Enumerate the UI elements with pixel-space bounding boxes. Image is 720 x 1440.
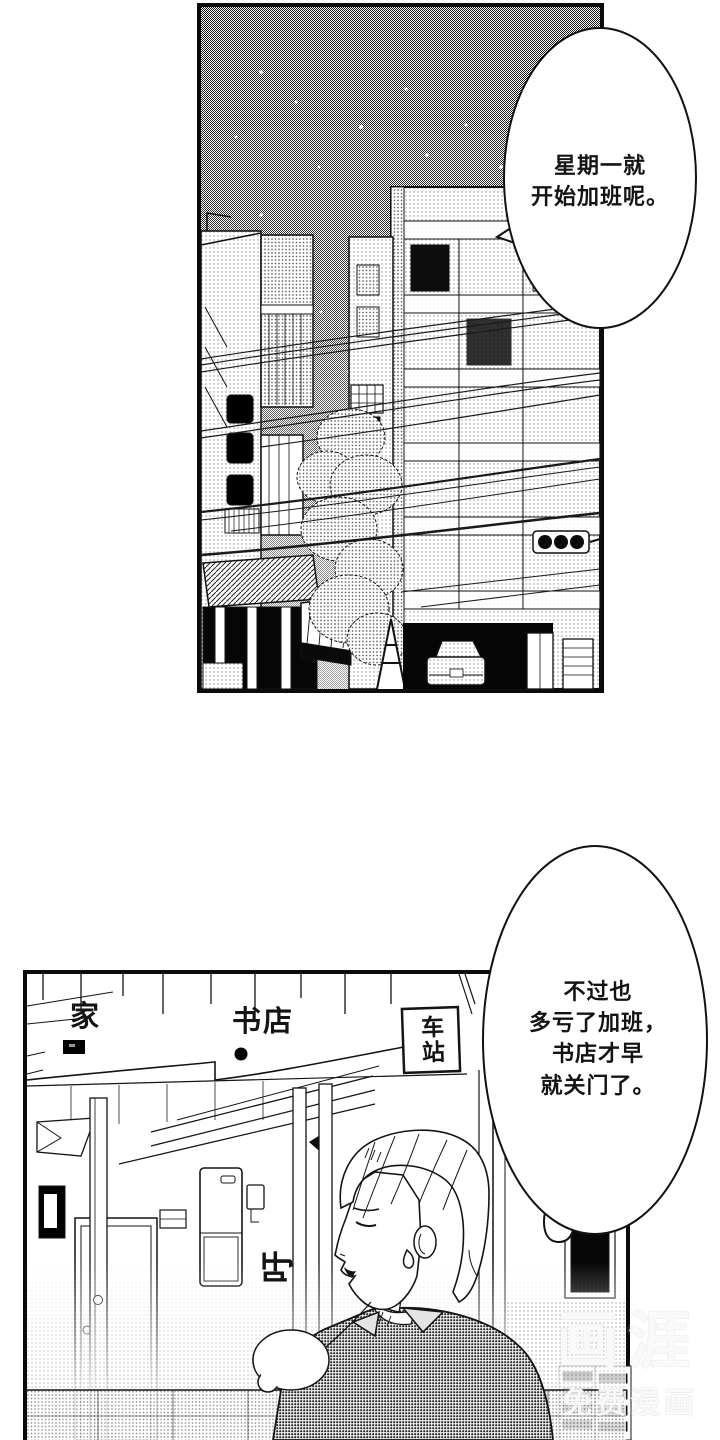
- bubble2-line: 多亏了加班，: [498, 1007, 698, 1038]
- sigh-sfx-text: 吁: [252, 1244, 298, 1290]
- panel-night-street: [197, 3, 604, 693]
- bubble2-line: 书店才早: [498, 1038, 698, 1069]
- watermark-brand: 画涯: [556, 1308, 700, 1376]
- night-street-illustration: [201, 7, 600, 689]
- map-label-home: 家: [70, 993, 101, 1035]
- map-bookstore-marker: [235, 1048, 248, 1061]
- speech-bubble-2-text: 不过也 多亏了加班， 书店才早 就关门了。: [498, 976, 698, 1101]
- bubble1-line: 星期一就: [505, 150, 695, 181]
- bubble2-line: 就关门了。: [498, 1070, 698, 1101]
- bubble1-line: 开始加班呢。: [505, 181, 695, 212]
- awning: [203, 555, 319, 607]
- map-label-bookstore: 书店: [232, 998, 294, 1040]
- station-canopy: [119, 1066, 379, 1164]
- watermark-tagline: 免费漫画: [556, 1378, 700, 1422]
- manga-page: 星期一就 开始加班呢。 不过也 多亏了加班， 书店才早 就关门了。 家 书店 车…: [0, 0, 720, 1440]
- ear: [414, 1226, 436, 1258]
- site-watermark: 画涯 免费漫画: [556, 1308, 700, 1422]
- speech-bubble-1-text: 星期一就 开始加班呢。: [505, 150, 695, 212]
- bubble2-line: 不过也: [498, 976, 698, 1007]
- map-label-station: 车站: [402, 1007, 460, 1073]
